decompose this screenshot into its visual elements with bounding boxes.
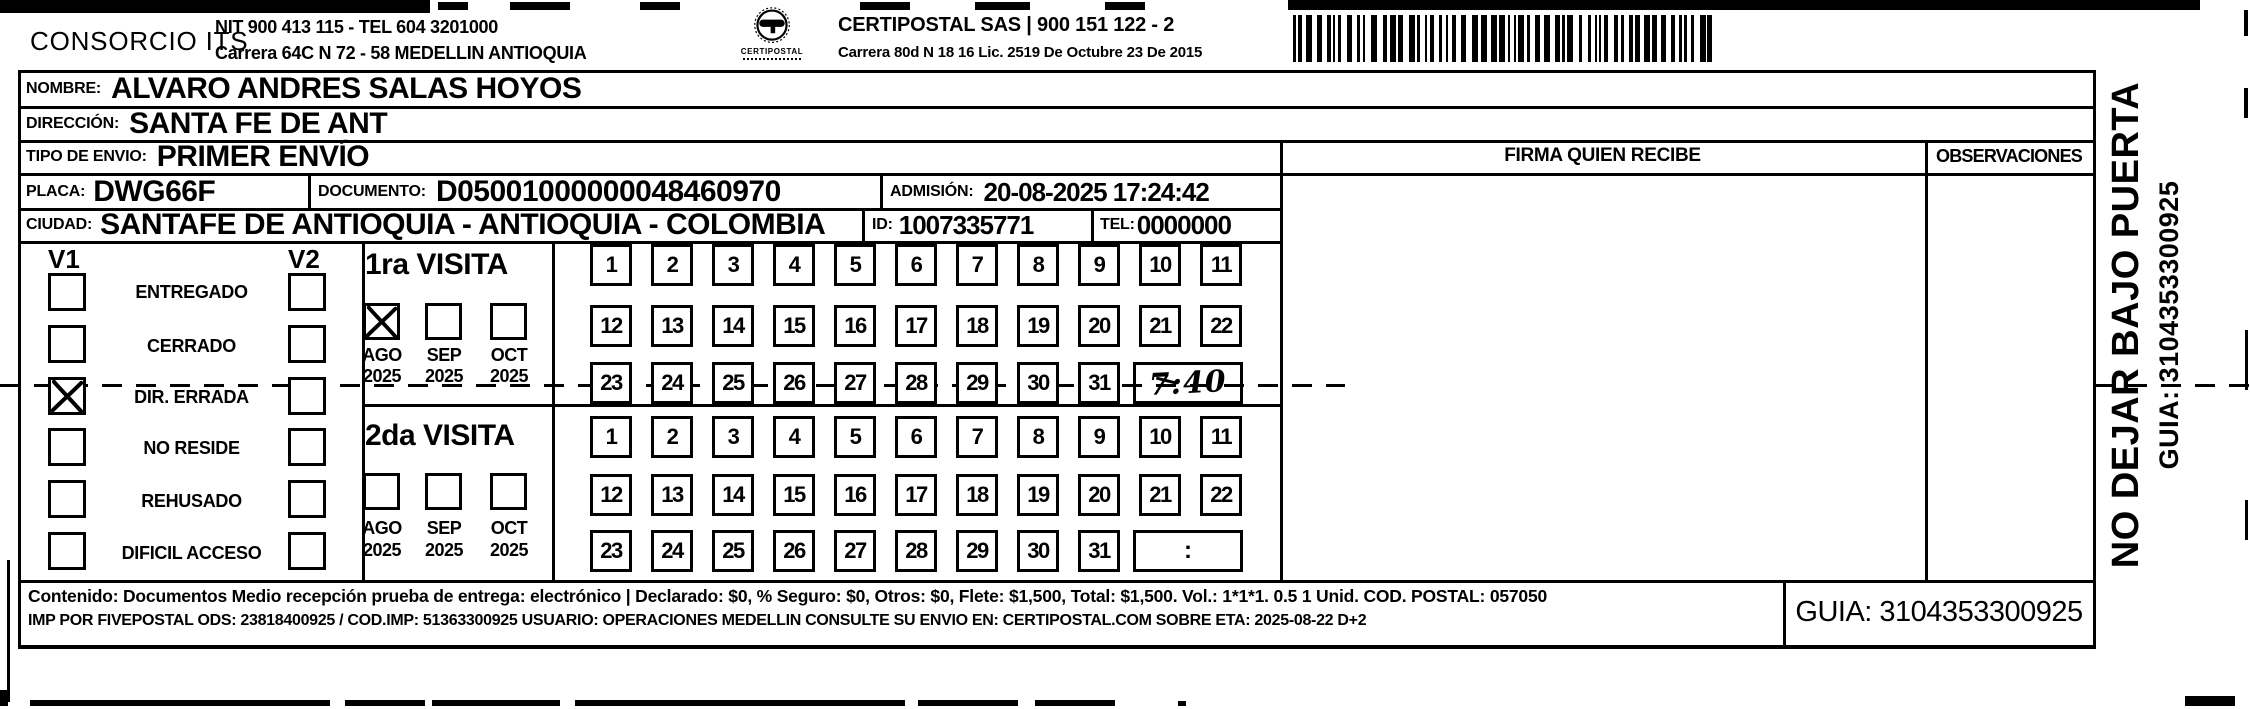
day-box-visit1-9: 9 bbox=[1078, 244, 1120, 286]
visit2-title: 2da VISITA bbox=[365, 419, 514, 453]
day-box-visit2-23: 23 bbox=[590, 530, 632, 572]
tipo-envio-row: TIPO DE ENVIO: PRIMER ENVÍO bbox=[26, 142, 369, 171]
side-margin-text: NO DEJAR BAJO PUERTA GUIA: 3104353300925 bbox=[2103, 45, 2199, 605]
visit2-month-ago: AGO bbox=[356, 518, 408, 539]
nombre-label: NOMBRE: bbox=[26, 80, 101, 98]
footer-content-line: Contenido: Documentos Medio recepción pr… bbox=[28, 586, 1547, 607]
status-label-dir-errada: DIR. ERRADA bbox=[105, 387, 278, 408]
visit1-month-ago: AGO bbox=[356, 345, 408, 366]
carrier-logo: CERTIPOSTAL bbox=[722, 6, 822, 60]
checkbox-v2-entregado bbox=[288, 273, 326, 311]
checkbox-v2-dificil-acceso bbox=[288, 532, 326, 570]
checkbox-v2-cerrado bbox=[288, 325, 326, 363]
day-box-visit1-5: 5 bbox=[834, 244, 876, 286]
no-dejar-bajo-puerta-warning: NO DEJAR BAJO PUERTA bbox=[2103, 45, 2149, 605]
time-colon: : bbox=[1184, 537, 1192, 565]
day-box-visit1-31: 31 bbox=[1078, 362, 1120, 404]
shipping-label-scan: CONSORCIO ITS NIT 900 413 115 - TEL 604 … bbox=[0, 0, 2250, 709]
company-nit-tel: NIT 900 413 115 - TEL 604 3201000 bbox=[215, 14, 586, 40]
scan-artifact bbox=[2244, 88, 2248, 118]
tipo-envio-value: PRIMER ENVÍO bbox=[157, 142, 369, 172]
table-line bbox=[362, 404, 1283, 407]
documento-label: DOCUMENTO: bbox=[318, 183, 426, 201]
day-box-visit2-11: 11 bbox=[1200, 416, 1242, 458]
day-box-visit1-13: 13 bbox=[651, 305, 693, 347]
day-box-visit2-31: 31 bbox=[1078, 530, 1120, 572]
day-box-visit1-25: 25 bbox=[712, 362, 754, 404]
table-line bbox=[1280, 140, 1283, 583]
placa-value: DWG66F bbox=[93, 177, 215, 207]
scan-artifact bbox=[2245, 500, 2248, 540]
day-box-visit1-1: 1 bbox=[590, 244, 632, 286]
admision-value: 20-08-2025 17:24:42 bbox=[984, 179, 1209, 205]
carrier-address-lic: Carrera 80d N 18 16 Lic. 2519 De Octubre… bbox=[838, 44, 1202, 61]
day-box-visit2-21: 21 bbox=[1139, 474, 1181, 516]
day-box-visit2-27: 27 bbox=[834, 530, 876, 572]
placa-row: PLACA: DWG66F bbox=[26, 176, 215, 207]
day-box-visit1-15: 15 bbox=[773, 305, 815, 347]
scan-artifact bbox=[2244, 10, 2248, 36]
v1-header: V1 bbox=[48, 244, 80, 275]
id-row: ID: 1007335771 bbox=[872, 210, 1033, 239]
visit1-month-oct: OCT bbox=[483, 345, 535, 366]
day-box-visit1-19: 19 bbox=[1017, 305, 1059, 347]
scan-artifact-bottom bbox=[1035, 700, 1115, 706]
v2-header: V2 bbox=[288, 244, 320, 275]
table-line bbox=[862, 208, 865, 244]
day-box-visit1-2: 2 bbox=[651, 244, 693, 286]
checkbox-visit2-sep bbox=[425, 473, 462, 510]
day-box-visit1-4: 4 bbox=[773, 244, 815, 286]
day-box-visit2-5: 5 bbox=[834, 416, 876, 458]
day-box-visit2-8: 8 bbox=[1017, 416, 1059, 458]
day-box-visit2-24: 24 bbox=[651, 530, 693, 572]
day-box-visit2-20: 20 bbox=[1078, 474, 1120, 516]
day-box-visit2-2: 2 bbox=[651, 416, 693, 458]
visit2-month-oct: OCT bbox=[483, 518, 535, 539]
side-guia-number: GUIA: 3104353300925 bbox=[2149, 45, 2189, 605]
checkbox-v1-dificil-acceso bbox=[48, 532, 86, 570]
scan-artifact-top-bar-left bbox=[0, 0, 430, 13]
scan-artifact bbox=[510, 2, 570, 10]
table-line bbox=[308, 173, 311, 211]
scan-artifact-bottom bbox=[2185, 696, 2235, 706]
visit1-year-oct: 2025 bbox=[483, 366, 535, 387]
day-box-visit2-7: 7 bbox=[956, 416, 998, 458]
day-box-visit1-7: 7 bbox=[956, 244, 998, 286]
day-box-visit2-1: 1 bbox=[590, 416, 632, 458]
table-line bbox=[18, 70, 21, 649]
day-box-visit2-6: 6 bbox=[895, 416, 937, 458]
day-box-visit1-26: 26 bbox=[773, 362, 815, 404]
scan-artifact-bottom bbox=[1178, 701, 1186, 706]
checkbox-visit1-sep bbox=[425, 303, 462, 340]
visit2-month-sep: SEP bbox=[418, 518, 470, 539]
table-line bbox=[1925, 140, 1928, 583]
scan-artifact-bottom bbox=[345, 700, 425, 706]
day-box-visit2-10: 10 bbox=[1139, 416, 1181, 458]
visit1-title: 1ra VISITA bbox=[365, 248, 508, 282]
checkbox-v1-entregado bbox=[48, 273, 86, 311]
checkbox-visit1-oct bbox=[490, 303, 527, 340]
direccion-value: SANTA FE DE ANT bbox=[129, 109, 387, 139]
day-box-visit2-3: 3 bbox=[712, 416, 754, 458]
status-label-cerrado: CERRADO bbox=[105, 336, 278, 357]
checkbox-v2-rehusado bbox=[288, 480, 326, 518]
day-box-visit1-24: 24 bbox=[651, 362, 693, 404]
tel-label: TEL: bbox=[1100, 216, 1135, 234]
observaciones-column-header: OBSERVACIONES bbox=[1925, 141, 2093, 171]
company-info: NIT 900 413 115 - TEL 604 3201000 Carrer… bbox=[215, 14, 586, 66]
checkbox-v1-dir-errada bbox=[48, 377, 86, 415]
documento-value: D05001000000048460970 bbox=[436, 177, 781, 207]
scan-artifact bbox=[0, 690, 8, 706]
admision-label: ADMISIÓN: bbox=[890, 183, 974, 201]
firma-column-header: FIRMA QUIEN RECIBE bbox=[1280, 141, 1925, 171]
scan-artifact-left-line bbox=[7, 560, 10, 702]
company-address: Carrera 64C N 72 - 58 MEDELLIN ANTIOQUIA bbox=[215, 40, 586, 66]
status-label-entregado: ENTREGADO bbox=[105, 282, 278, 303]
visit1-year-sep: 2025 bbox=[418, 366, 470, 387]
scan-artifact-bottom bbox=[432, 700, 560, 706]
time-box-visit2: : bbox=[1133, 530, 1243, 572]
day-box-visit2-28: 28 bbox=[895, 530, 937, 572]
day-box-visit1-8: 8 bbox=[1017, 244, 1059, 286]
tipo-envio-label: TIPO DE ENVIO: bbox=[26, 148, 147, 166]
firma-signature-area bbox=[1283, 176, 1923, 578]
visit1-month-sep: SEP bbox=[418, 345, 470, 366]
checkbox-visit1-ago bbox=[363, 303, 400, 340]
day-box-visit2-17: 17 bbox=[895, 474, 937, 516]
nombre-value: ALVARO ANDRES SALAS HOYOS bbox=[111, 74, 581, 104]
checkbox-v1-cerrado bbox=[48, 325, 86, 363]
status-label-dificil-acceso: DIFICIL ACCESO bbox=[100, 543, 283, 564]
documento-row: DOCUMENTO: D05001000000048460970 bbox=[318, 176, 781, 207]
day-box-visit1-23: 23 bbox=[590, 362, 632, 404]
day-box-visit2-14: 14 bbox=[712, 474, 754, 516]
scan-artifact bbox=[1105, 2, 1145, 10]
table-line bbox=[880, 173, 883, 211]
scan-artifact bbox=[438, 2, 468, 10]
scan-artifact bbox=[2245, 330, 2248, 390]
day-box-visit1-22: 22 bbox=[1200, 305, 1242, 347]
day-box-visit1-28: 28 bbox=[895, 362, 937, 404]
day-box-visit2-26: 26 bbox=[773, 530, 815, 572]
ciudad-label: CIUDAD: bbox=[26, 216, 92, 234]
day-box-visit1-29: 29 bbox=[956, 362, 998, 404]
day-box-visit2-16: 16 bbox=[834, 474, 876, 516]
day-box-visit1-12: 12 bbox=[590, 305, 632, 347]
day-box-visit2-13: 13 bbox=[651, 474, 693, 516]
carrier-info: CERTIPOSTAL SAS | 900 151 122 - 2 Carrer… bbox=[838, 14, 1202, 61]
scan-artifact bbox=[975, 2, 1030, 10]
logo-caption: CERTIPOSTAL bbox=[722, 47, 822, 56]
checkbox-v1-no-reside bbox=[48, 428, 86, 466]
carrier-name-nit: CERTIPOSTAL SAS | 900 151 122 - 2 bbox=[838, 14, 1202, 37]
status-label-no-reside: NO RESIDE bbox=[105, 438, 278, 459]
day-box-visit1-18: 18 bbox=[956, 305, 998, 347]
day-box-visit2-18: 18 bbox=[956, 474, 998, 516]
ciudad-row: CIUDAD: SANTAFE DE ANTIOQUIA - ANTIOQUIA… bbox=[26, 210, 825, 239]
footer-imp-line: IMP POR FIVEPOSTAL ODS: 23818400925 / CO… bbox=[28, 612, 1366, 630]
tel-row: TEL: 0000000 bbox=[1100, 210, 1231, 239]
day-box-visit2-30: 30 bbox=[1017, 530, 1059, 572]
day-box-visit2-9: 9 bbox=[1078, 416, 1120, 458]
day-box-visit2-22: 22 bbox=[1200, 474, 1242, 516]
direccion-row: DIRECCIÓN: SANTA FE DE ANT bbox=[26, 109, 387, 139]
scan-artifact bbox=[860, 2, 910, 10]
checkbox-visit2-oct bbox=[490, 473, 527, 510]
scan-artifact-bottom bbox=[575, 700, 905, 706]
day-box-visit2-19: 19 bbox=[1017, 474, 1059, 516]
day-box-visit1-16: 16 bbox=[834, 305, 876, 347]
certipostal-logo-icon bbox=[752, 6, 792, 46]
table-line bbox=[1783, 580, 1786, 649]
day-box-visit1-30: 30 bbox=[1017, 362, 1059, 404]
guia-number-box: GUIA: 3104353300925 bbox=[1788, 582, 2090, 642]
checkbox-v2-dir-errada bbox=[288, 377, 326, 415]
nombre-row: NOMBRE: ALVARO ANDRES SALAS HOYOS bbox=[26, 73, 581, 105]
observaciones-area bbox=[1928, 176, 2091, 578]
day-box-visit1-17: 17 bbox=[895, 305, 937, 347]
visit2-year-oct: 2025 bbox=[483, 540, 535, 561]
day-box-visit1-6: 6 bbox=[895, 244, 937, 286]
scan-artifact-bottom bbox=[30, 700, 330, 706]
handwritten-time: 7:40 bbox=[1148, 363, 1227, 402]
scan-artifact-top-bar-right bbox=[1288, 0, 2200, 10]
day-box-visit1-10: 10 bbox=[1139, 244, 1181, 286]
day-box-visit2-12: 12 bbox=[590, 474, 632, 516]
direccion-label: DIRECCIÓN: bbox=[26, 115, 119, 133]
ciudad-value: SANTAFE DE ANTIOQUIA - ANTIOQUIA - COLOM… bbox=[100, 210, 825, 240]
time-box-visit1: 7:40 bbox=[1133, 362, 1243, 404]
day-box-visit1-27: 27 bbox=[834, 362, 876, 404]
day-box-visit2-15: 15 bbox=[773, 474, 815, 516]
day-box-visit2-29: 29 bbox=[956, 530, 998, 572]
id-value: 1007335771 bbox=[899, 212, 1034, 238]
day-box-visit1-14: 14 bbox=[712, 305, 754, 347]
day-box-visit1-20: 20 bbox=[1078, 305, 1120, 347]
tel-value: 0000000 bbox=[1137, 212, 1231, 238]
logo-subline bbox=[743, 58, 801, 60]
day-box-visit2-4: 4 bbox=[773, 416, 815, 458]
day-box-visit2-25: 25 bbox=[712, 530, 754, 572]
placa-label: PLACA: bbox=[26, 183, 85, 201]
checkbox-v2-no-reside bbox=[288, 428, 326, 466]
day-box-visit1-3: 3 bbox=[712, 244, 754, 286]
table-line bbox=[552, 241, 555, 583]
checkbox-visit2-ago bbox=[363, 473, 400, 510]
id-label: ID: bbox=[872, 216, 893, 234]
status-label-rehusado: REHUSADO bbox=[105, 491, 278, 512]
checkbox-v1-rehusado bbox=[48, 480, 86, 518]
table-line bbox=[1091, 208, 1094, 244]
table-line bbox=[2093, 70, 2096, 649]
visit2-year-sep: 2025 bbox=[418, 540, 470, 561]
scan-artifact bbox=[640, 2, 680, 10]
day-box-visit1-21-marked: 21 bbox=[1139, 305, 1181, 347]
barcode bbox=[1293, 15, 1717, 62]
scan-artifact-bottom bbox=[918, 700, 1018, 706]
day-box-visit1-11: 11 bbox=[1200, 244, 1242, 286]
admision-row: ADMISIÓN: 20-08-2025 17:24:42 bbox=[890, 176, 1209, 207]
